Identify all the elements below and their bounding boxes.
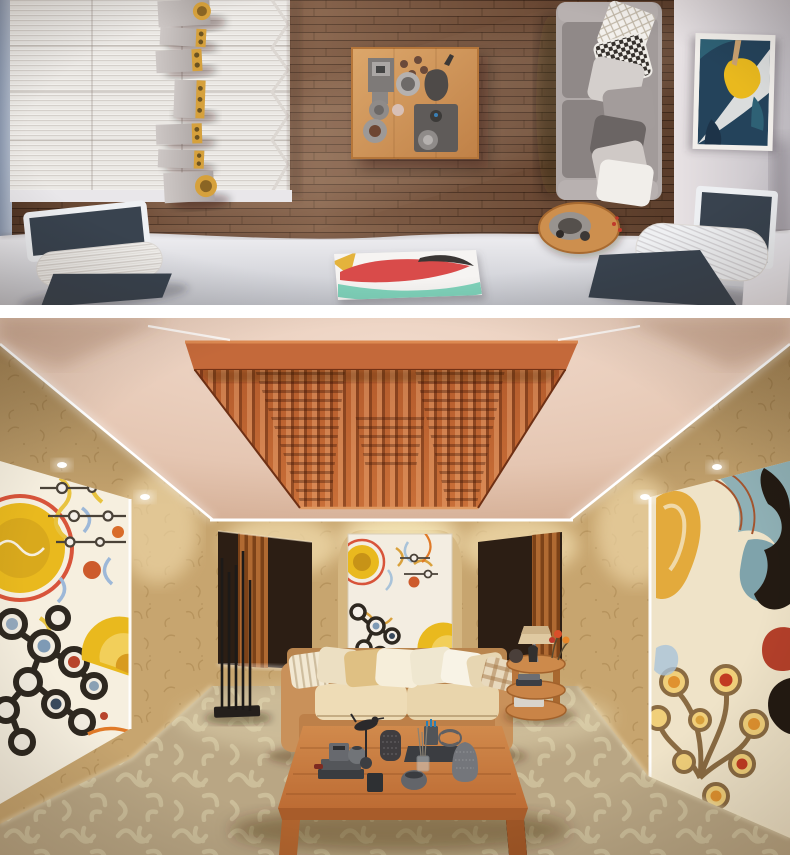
perspective-view-photo: [0, 318, 790, 855]
perspective-scene: [0, 318, 790, 855]
vignette-overlay: [0, 0, 790, 305]
vignette-overlay: [0, 318, 790, 855]
top-view-scene: [0, 0, 790, 305]
screenshot-canvas: [0, 0, 790, 855]
top-view-photo: [0, 0, 790, 305]
photo-gap: [0, 305, 790, 318]
